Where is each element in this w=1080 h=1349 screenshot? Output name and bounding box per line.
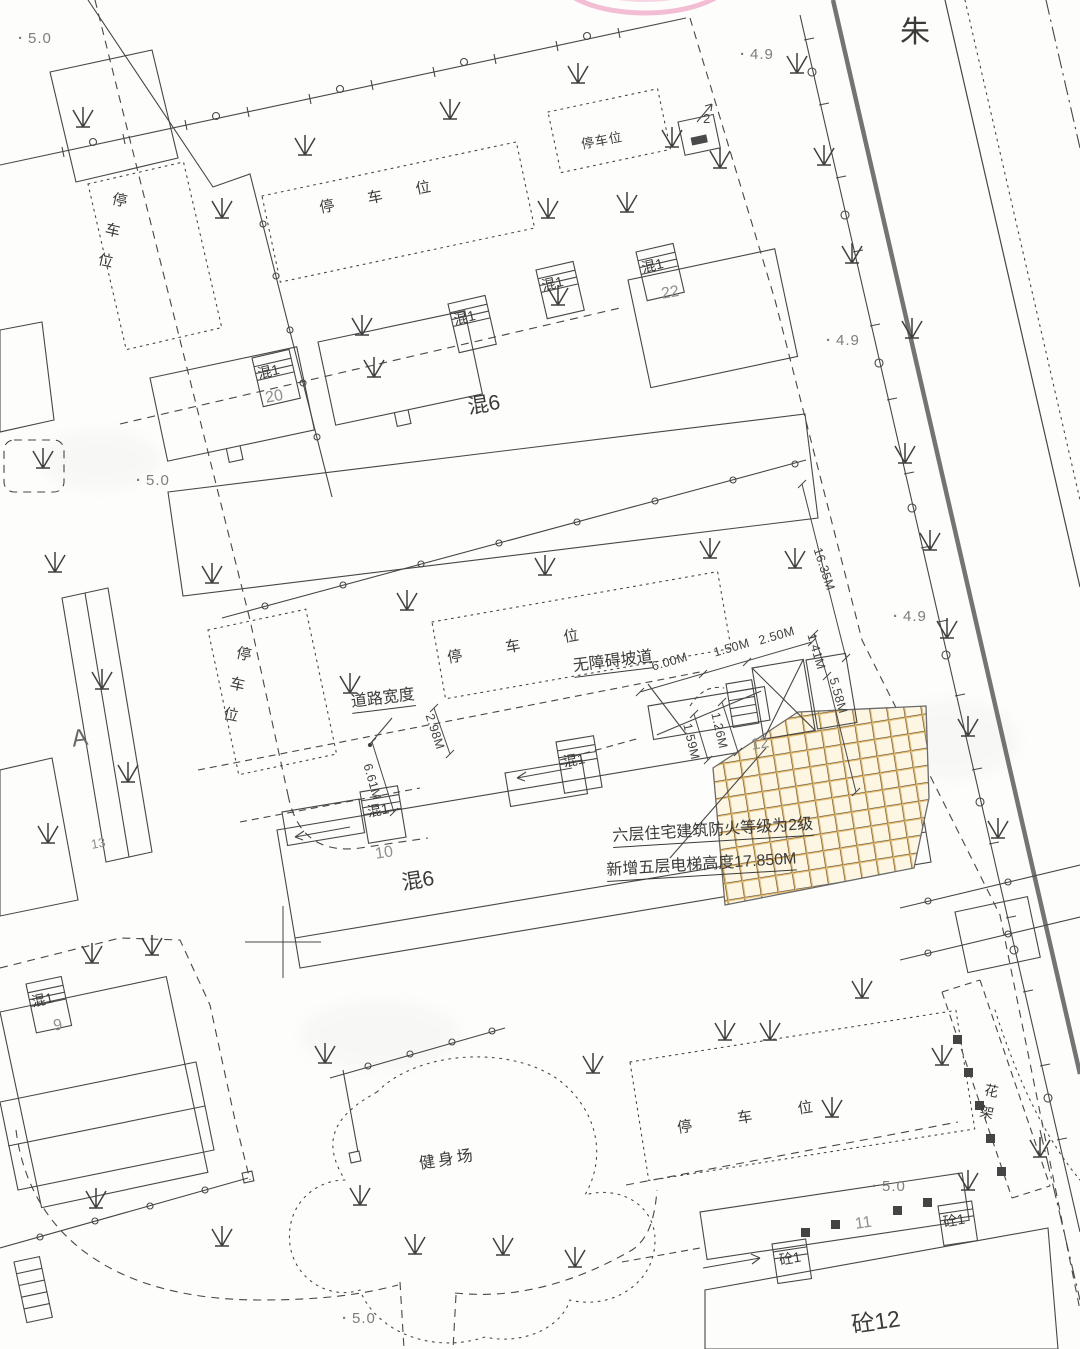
spot-elevation: 5.0 <box>342 1310 376 1327</box>
pink-marker-ellipse <box>557 0 733 13</box>
elevation-value: 4.9 <box>750 46 774 63</box>
site-boundary-west <box>95 0 288 795</box>
building-number-11: 11 <box>854 1214 873 1235</box>
site-plan-linework <box>0 0 1080 1349</box>
site-plan-scan: 朱 5.0 4.9 4.9 5.0 4.9 5.0 5.0 混6 混6 混1 混… <box>0 0 1080 1349</box>
building-11-12 <box>622 1173 1058 1349</box>
building-hun6-upper <box>168 414 818 618</box>
spot-elevation: 5.0 <box>18 30 52 47</box>
elevation-value: 5.0 <box>352 1310 376 1327</box>
spot-elevation: 4.9 <box>740 46 774 63</box>
street-name-label: 朱 <box>900 16 930 51</box>
west-side <box>0 0 428 849</box>
building-number-10: 10 <box>374 843 394 864</box>
building-number-12: 12 <box>750 734 770 755</box>
spot-elevation: 4.9 <box>826 332 860 349</box>
building-number-22: 22 <box>660 283 681 304</box>
utility-number-2: 2 <box>703 112 710 127</box>
building-row-20-22 <box>120 243 798 474</box>
elevation-value: 5.0 <box>28 30 52 47</box>
spot-elevation: 5.0 <box>136 472 170 489</box>
fence-mid <box>245 906 505 1163</box>
utility-box-2 <box>678 104 720 155</box>
spot-elevation: 5.0 <box>872 1178 906 1195</box>
tree-symbols <box>33 53 1050 1267</box>
fitness-area-outline <box>289 1057 655 1343</box>
stair-core-tong1-label: 砼1 <box>778 1249 802 1268</box>
elevation-value: 5.0 <box>882 1178 906 1195</box>
walkway-dashed <box>16 1122 958 1349</box>
building-number-20: 20 <box>264 387 285 408</box>
new-construction-highlight <box>713 706 929 905</box>
elevation-value: 4.9 <box>903 608 927 625</box>
elevation-value: 4.9 <box>836 332 860 349</box>
internal-road-edges <box>198 672 700 822</box>
building-hun6-label: 混6 <box>466 391 502 420</box>
elevation-value: 5.0 <box>146 472 170 489</box>
stair-core-tong1-label: 砼1 <box>942 1211 966 1230</box>
spot-elevation: 4.9 <box>893 608 927 625</box>
building-hun6-label: 混6 <box>400 867 436 896</box>
building-number-13: 13 <box>90 835 107 852</box>
